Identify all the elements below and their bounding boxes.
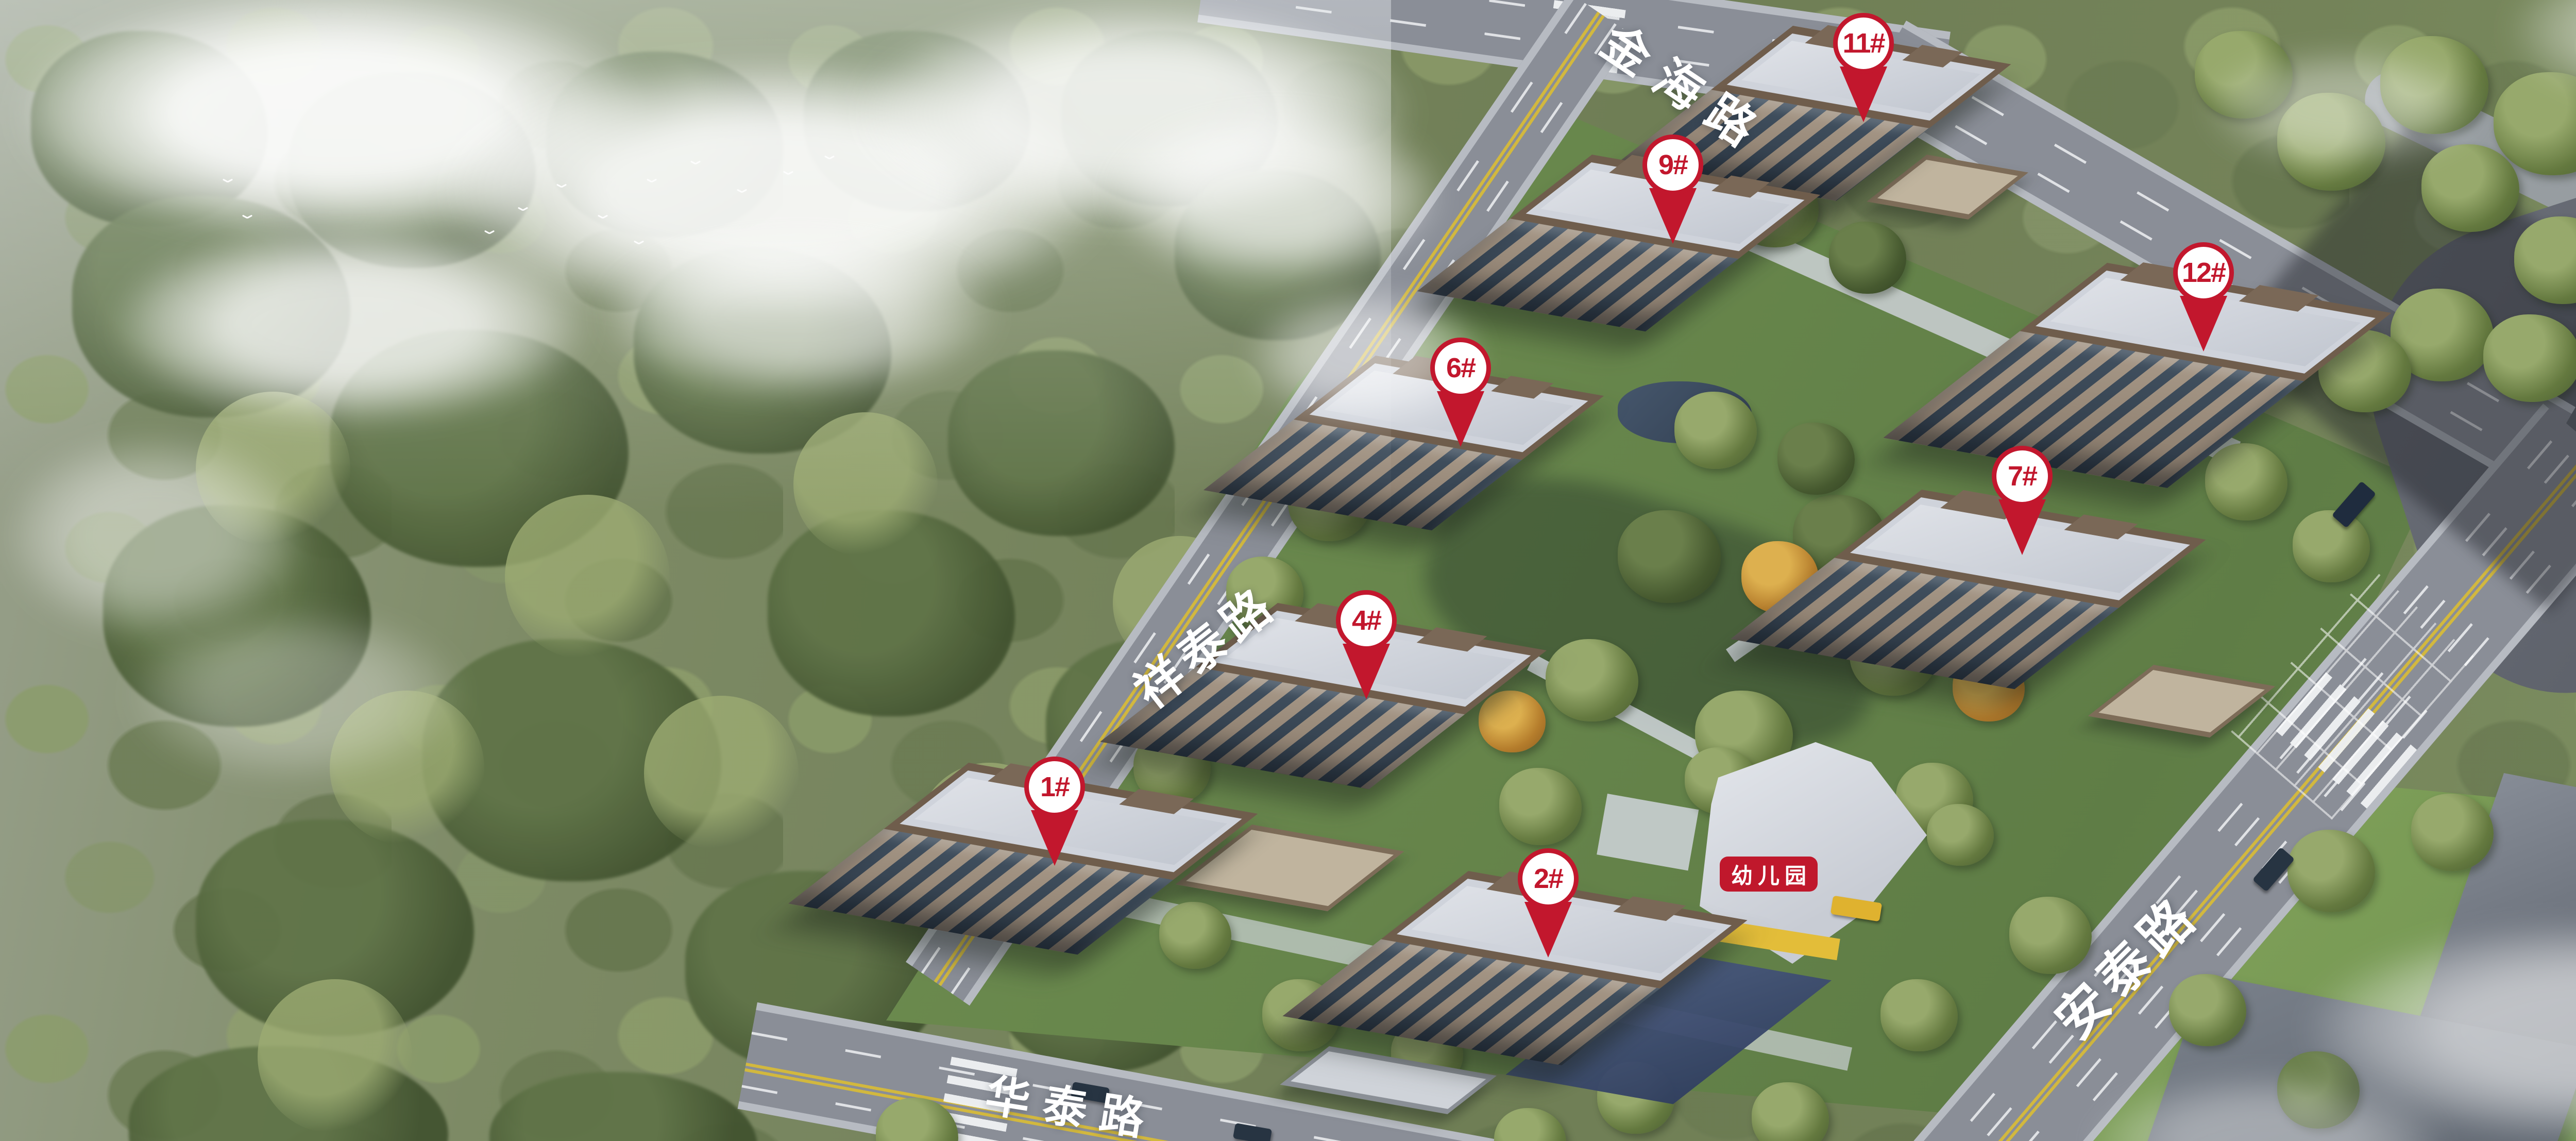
autumn-tree [1479,691,1546,752]
kindergarten-label: 幼儿园 [1720,857,1818,892]
marker-bubble: 1# [1024,757,1085,817]
marker-pointer [1840,66,1887,122]
tree [1880,979,1958,1051]
marker-pointer [1998,499,2046,555]
marker-pointer [1031,810,1078,866]
tree [1546,639,1638,721]
marker-pointer [1343,644,1390,699]
marker-label: 4# [1352,605,1381,636]
cloud [2164,31,2524,186]
bird [556,183,567,188]
marker-bubble: 7# [1992,446,2053,507]
bird [598,214,608,219]
bird [824,155,835,160]
bird [737,188,747,193]
bird [484,229,495,234]
marker-label: 1# [1040,771,1069,803]
bird [634,240,644,245]
marker-pointer [1524,902,1572,958]
marker-bubble: 12# [2173,242,2234,303]
marker-bubble: 6# [1430,338,1491,398]
marker-bubble: 4# [1336,590,1397,651]
tree [2483,314,2576,402]
marker-label: 6# [1446,352,1475,384]
aerial-rendering: 金海路 祥泰路 安泰路 华泰路 幼儿园 1# 2# 4# 6# 7# 9# 11… [0,0,2576,1141]
tree [1829,222,1906,294]
tree [1159,902,1231,969]
bird [518,206,528,211]
marker-pointer [1649,188,1697,244]
cloud [77,582,515,809]
marker-bubble: 11# [1833,13,1894,74]
tree [1777,423,1855,495]
bird [223,178,233,183]
cloud [541,206,1056,423]
marker-bubble: 2# [1518,848,1579,909]
marker-label: 9# [1658,149,1687,181]
marker-bubble: 9# [1642,135,1703,195]
tree [2411,794,2494,871]
tree [1927,804,1994,866]
bird [242,214,252,219]
bird [690,160,701,165]
forest-glade [258,979,412,1134]
tree [1618,510,1721,603]
tree [2205,443,2287,521]
forest-glade [505,495,670,660]
bird [783,170,793,175]
marker-pointer [1437,391,1484,447]
tree [1674,392,1757,469]
bird [647,178,657,183]
marker-label: 12# [2182,257,2225,289]
marker-label: 11# [1842,27,1884,59]
marker-pointer [2180,296,2227,351]
marker-label: 7# [2008,460,2037,492]
forest-glade [644,696,799,850]
tree [1499,768,1582,845]
tree [2287,830,2375,912]
tree [2293,510,2370,582]
marker-label: 2# [1534,863,1563,895]
